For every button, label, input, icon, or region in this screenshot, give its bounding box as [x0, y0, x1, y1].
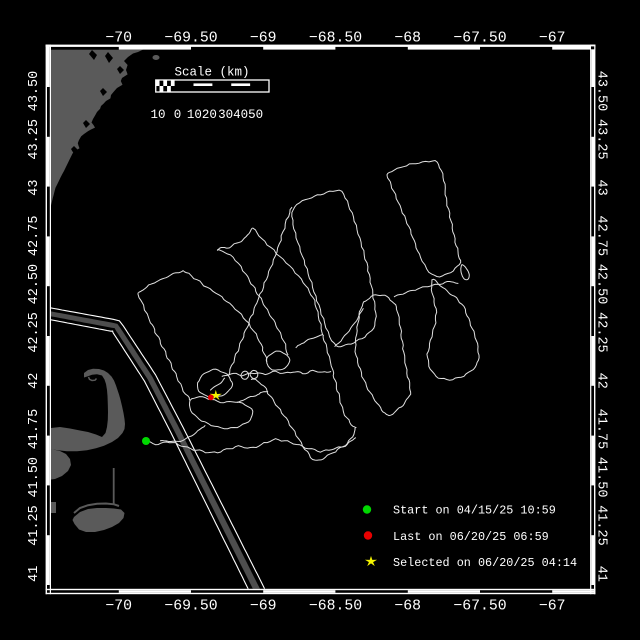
svg-text:40: 40 — [233, 108, 248, 122]
svg-text:42.25: 42.25 — [27, 312, 42, 353]
svg-text:42.50: 42.50 — [27, 264, 42, 305]
svg-text:−68.50: −68.50 — [309, 31, 362, 47]
svg-text:30: 30 — [218, 108, 233, 122]
svg-text:41: 41 — [594, 566, 609, 582]
svg-text:41.50: 41.50 — [594, 457, 609, 498]
svg-text:10: 10 — [187, 108, 202, 122]
svg-text:−67: −67 — [539, 599, 566, 615]
svg-text:−69: −69 — [250, 599, 277, 615]
svg-text:41.75: 41.75 — [27, 409, 42, 450]
svg-text:−70: −70 — [105, 599, 132, 615]
svg-text:0: 0 — [174, 108, 182, 122]
svg-text:−68.50: −68.50 — [309, 599, 362, 615]
svg-text:−68: −68 — [394, 31, 421, 47]
svg-text:Start on 04/15/25 10:59: Start on 04/15/25 10:59 — [393, 504, 556, 518]
svg-text:−69.50: −69.50 — [164, 599, 217, 615]
svg-text:−67.50: −67.50 — [453, 31, 506, 47]
svg-text:10: 10 — [150, 108, 165, 122]
svg-text:43.50: 43.50 — [27, 71, 42, 112]
svg-text:41.25: 41.25 — [27, 505, 42, 546]
svg-text:43.50: 43.50 — [594, 71, 609, 112]
svg-text:43: 43 — [594, 179, 609, 195]
svg-text:42.50: 42.50 — [594, 264, 609, 305]
svg-text:42.75: 42.75 — [27, 216, 42, 257]
svg-text:Selected on 06/20/25 04:14: Selected on 06/20/25 04:14 — [393, 556, 577, 570]
svg-text:−67.50: −67.50 — [453, 599, 506, 615]
svg-text:42: 42 — [27, 373, 42, 389]
svg-text:20: 20 — [202, 108, 217, 122]
svg-text:50: 50 — [248, 108, 263, 122]
svg-text:42.75: 42.75 — [594, 216, 609, 257]
svg-text:41.50: 41.50 — [27, 457, 42, 498]
svg-text:41: 41 — [27, 566, 42, 582]
svg-text:−69: −69 — [250, 31, 277, 47]
svg-text:Last on 06/20/25 06:59: Last on 06/20/25 06:59 — [393, 530, 549, 544]
svg-text:Scale (km): Scale (km) — [174, 66, 249, 80]
svg-text:−68: −68 — [394, 599, 421, 615]
svg-text:−69.50: −69.50 — [164, 31, 217, 47]
svg-text:43.25: 43.25 — [594, 119, 609, 160]
svg-text:−67: −67 — [539, 31, 566, 47]
svg-text:−70: −70 — [105, 31, 132, 47]
svg-text:41.25: 41.25 — [594, 505, 609, 546]
svg-text:43: 43 — [27, 179, 42, 195]
svg-text:42: 42 — [594, 373, 609, 389]
svg-text:43.25: 43.25 — [27, 119, 42, 160]
svg-text:42.25: 42.25 — [594, 312, 609, 353]
svg-text:41.75: 41.75 — [594, 409, 609, 450]
